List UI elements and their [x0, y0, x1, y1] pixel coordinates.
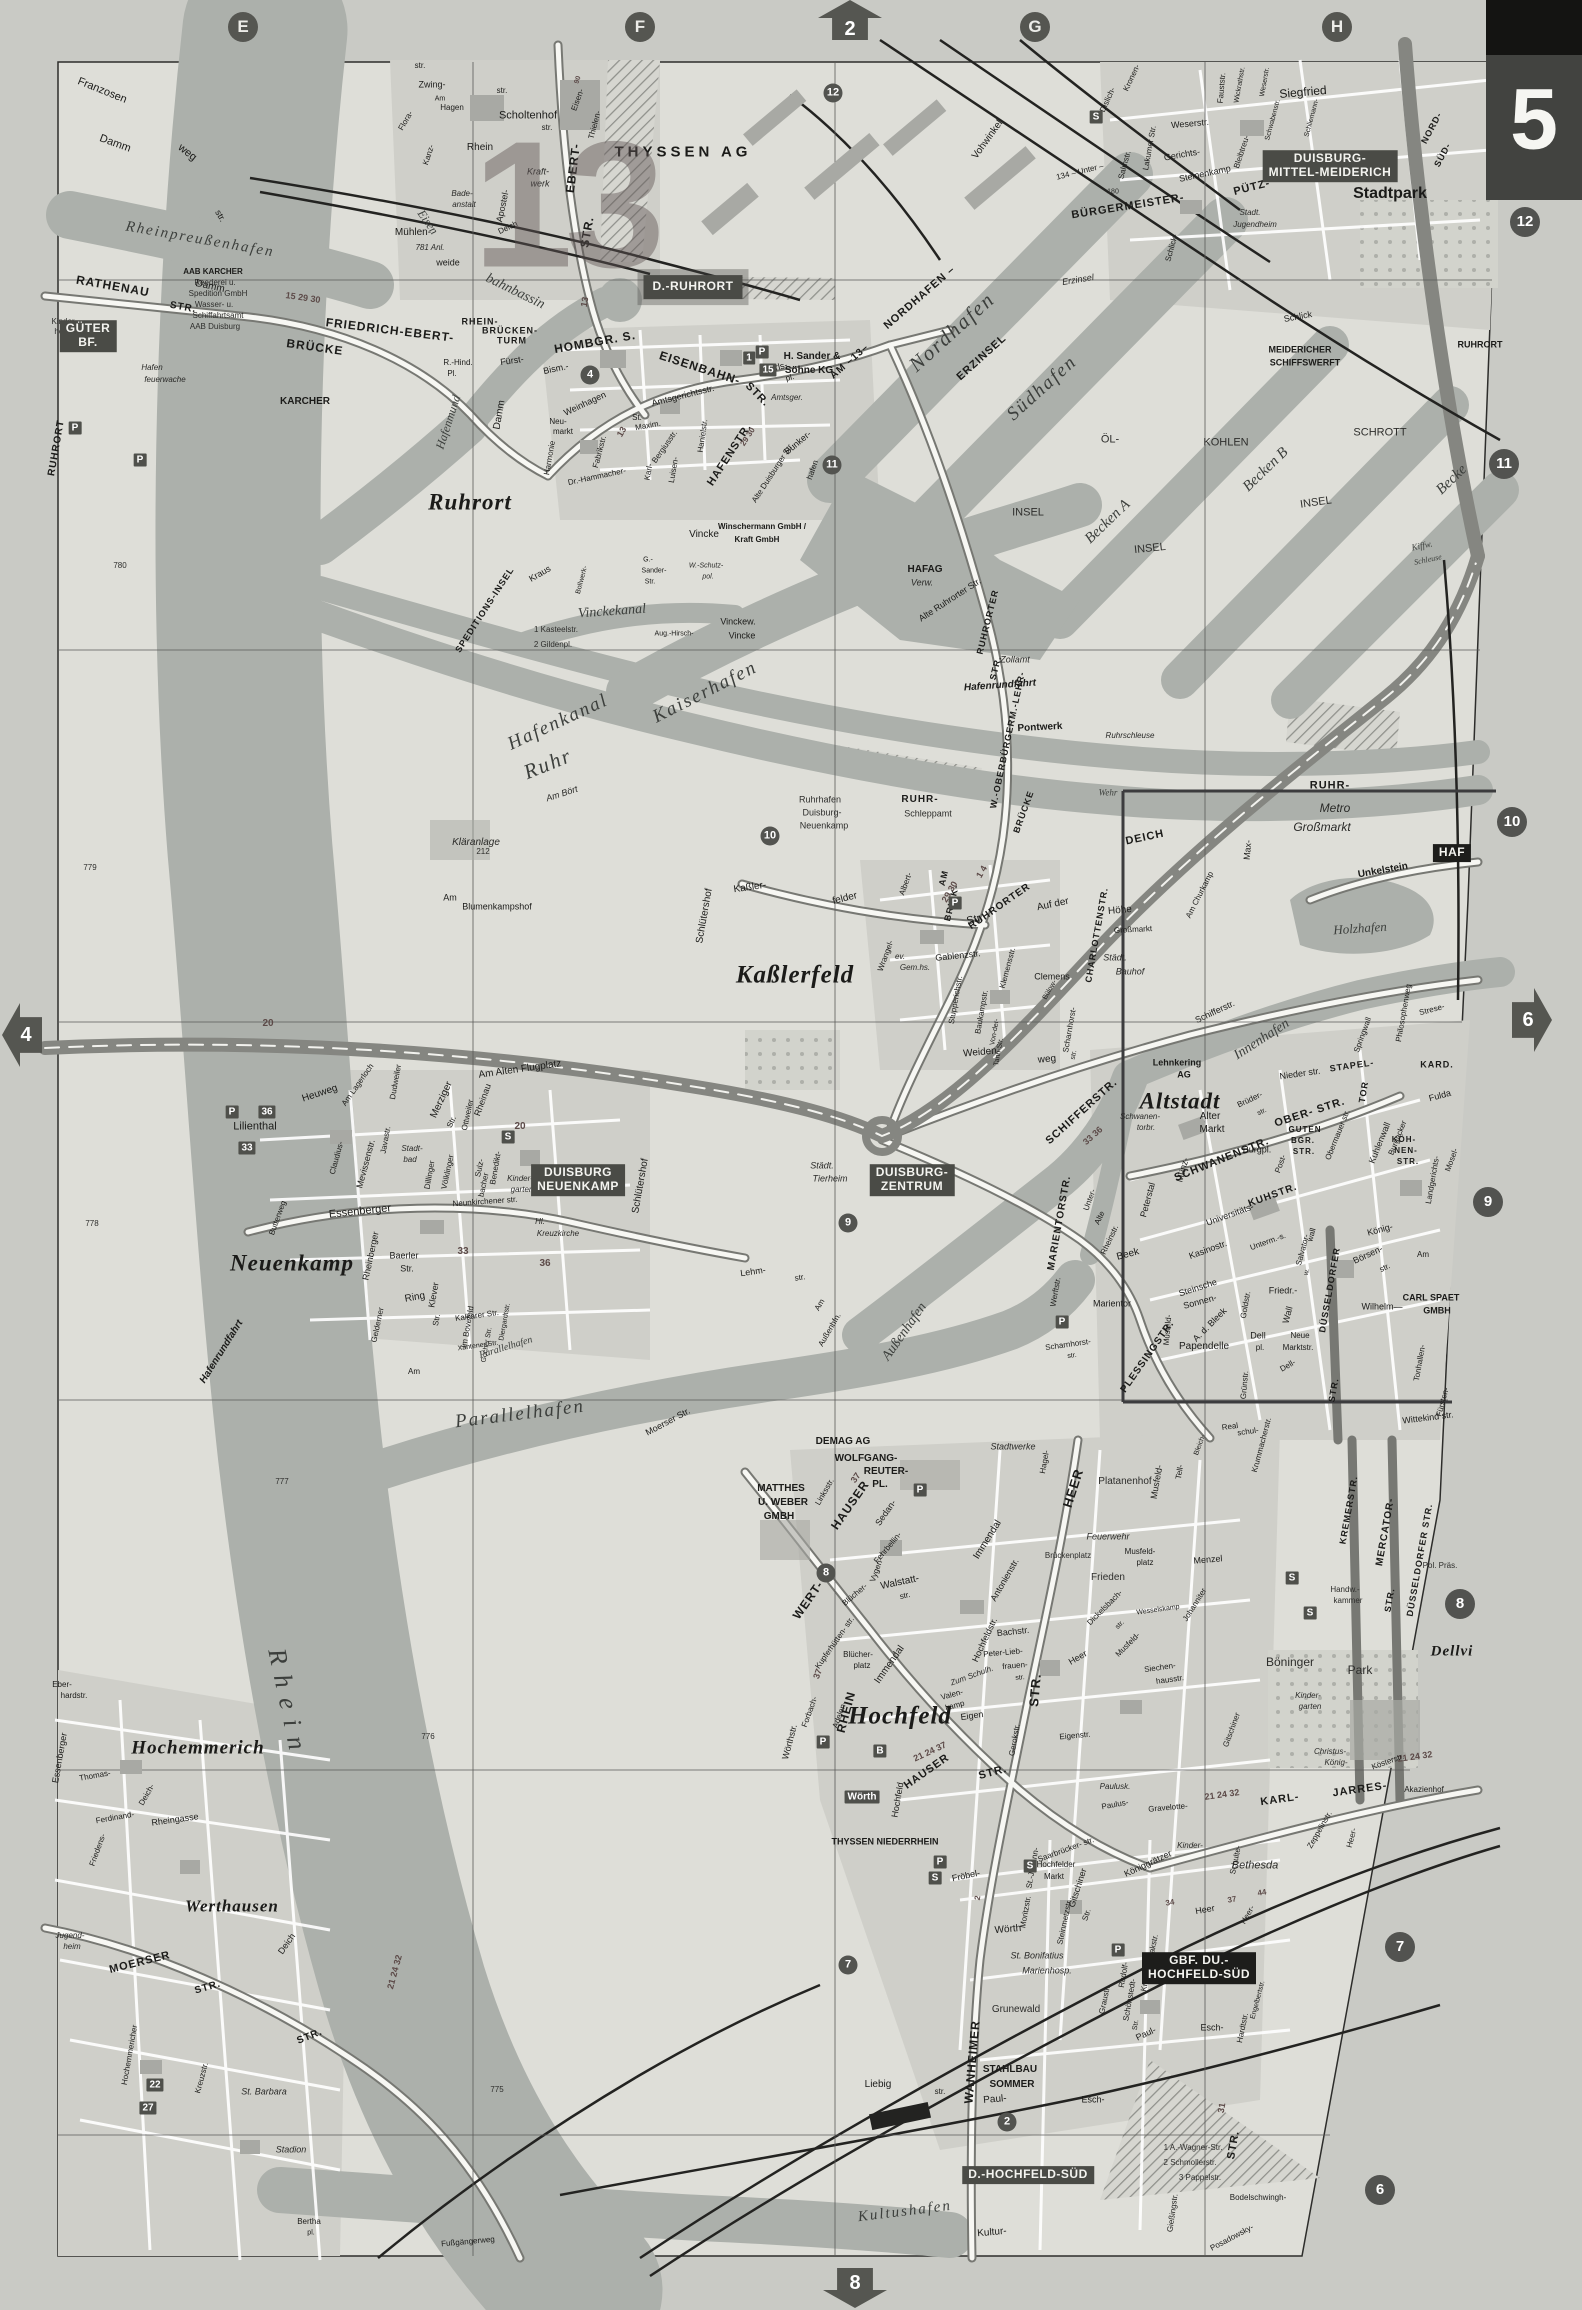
map-canvas — [0, 0, 1582, 2310]
map-page: RheinpreußenhafenEisenbahnbassinHafenmun… — [0, 0, 1582, 2310]
